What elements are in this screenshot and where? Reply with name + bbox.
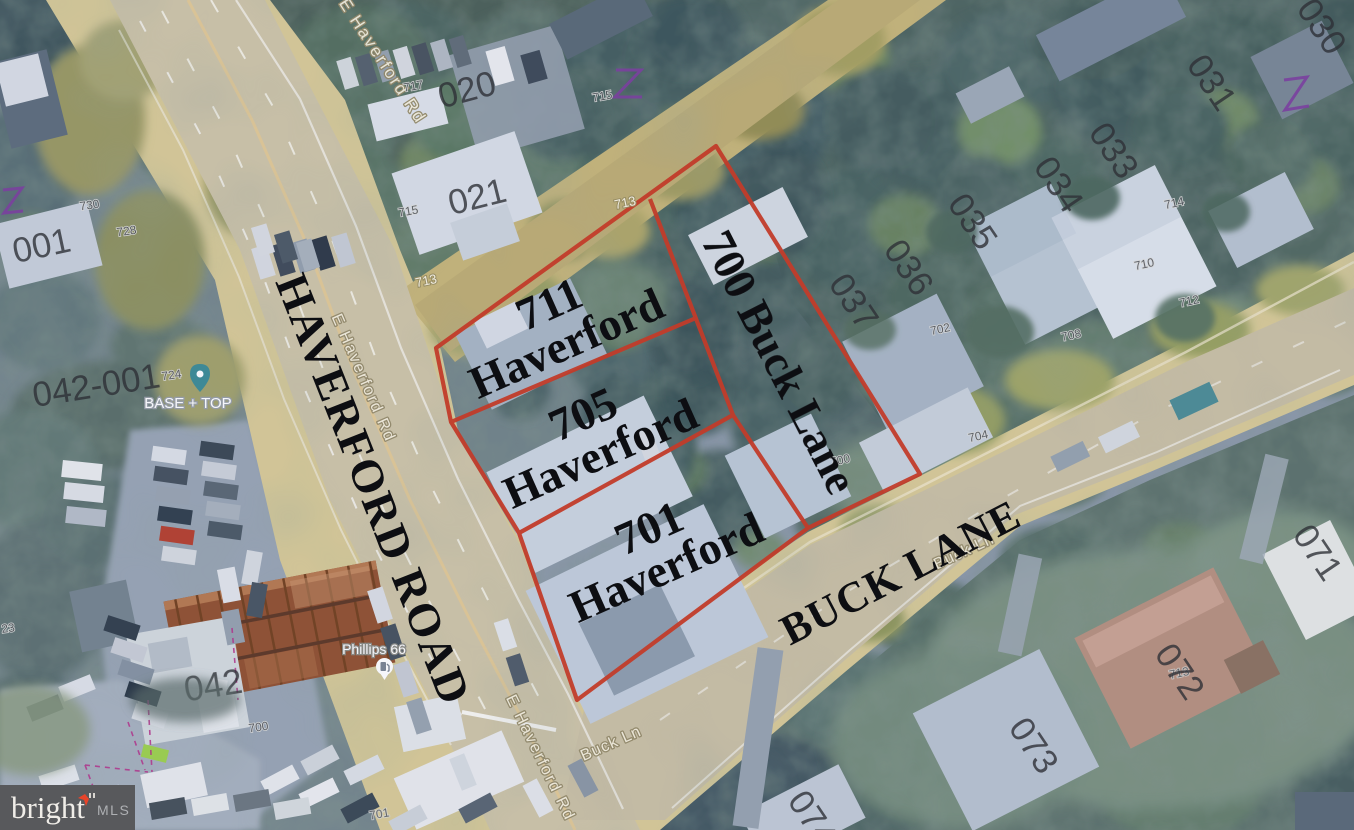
svg-text:MLS: MLS xyxy=(97,802,130,818)
svg-text:bright: bright xyxy=(11,790,85,825)
